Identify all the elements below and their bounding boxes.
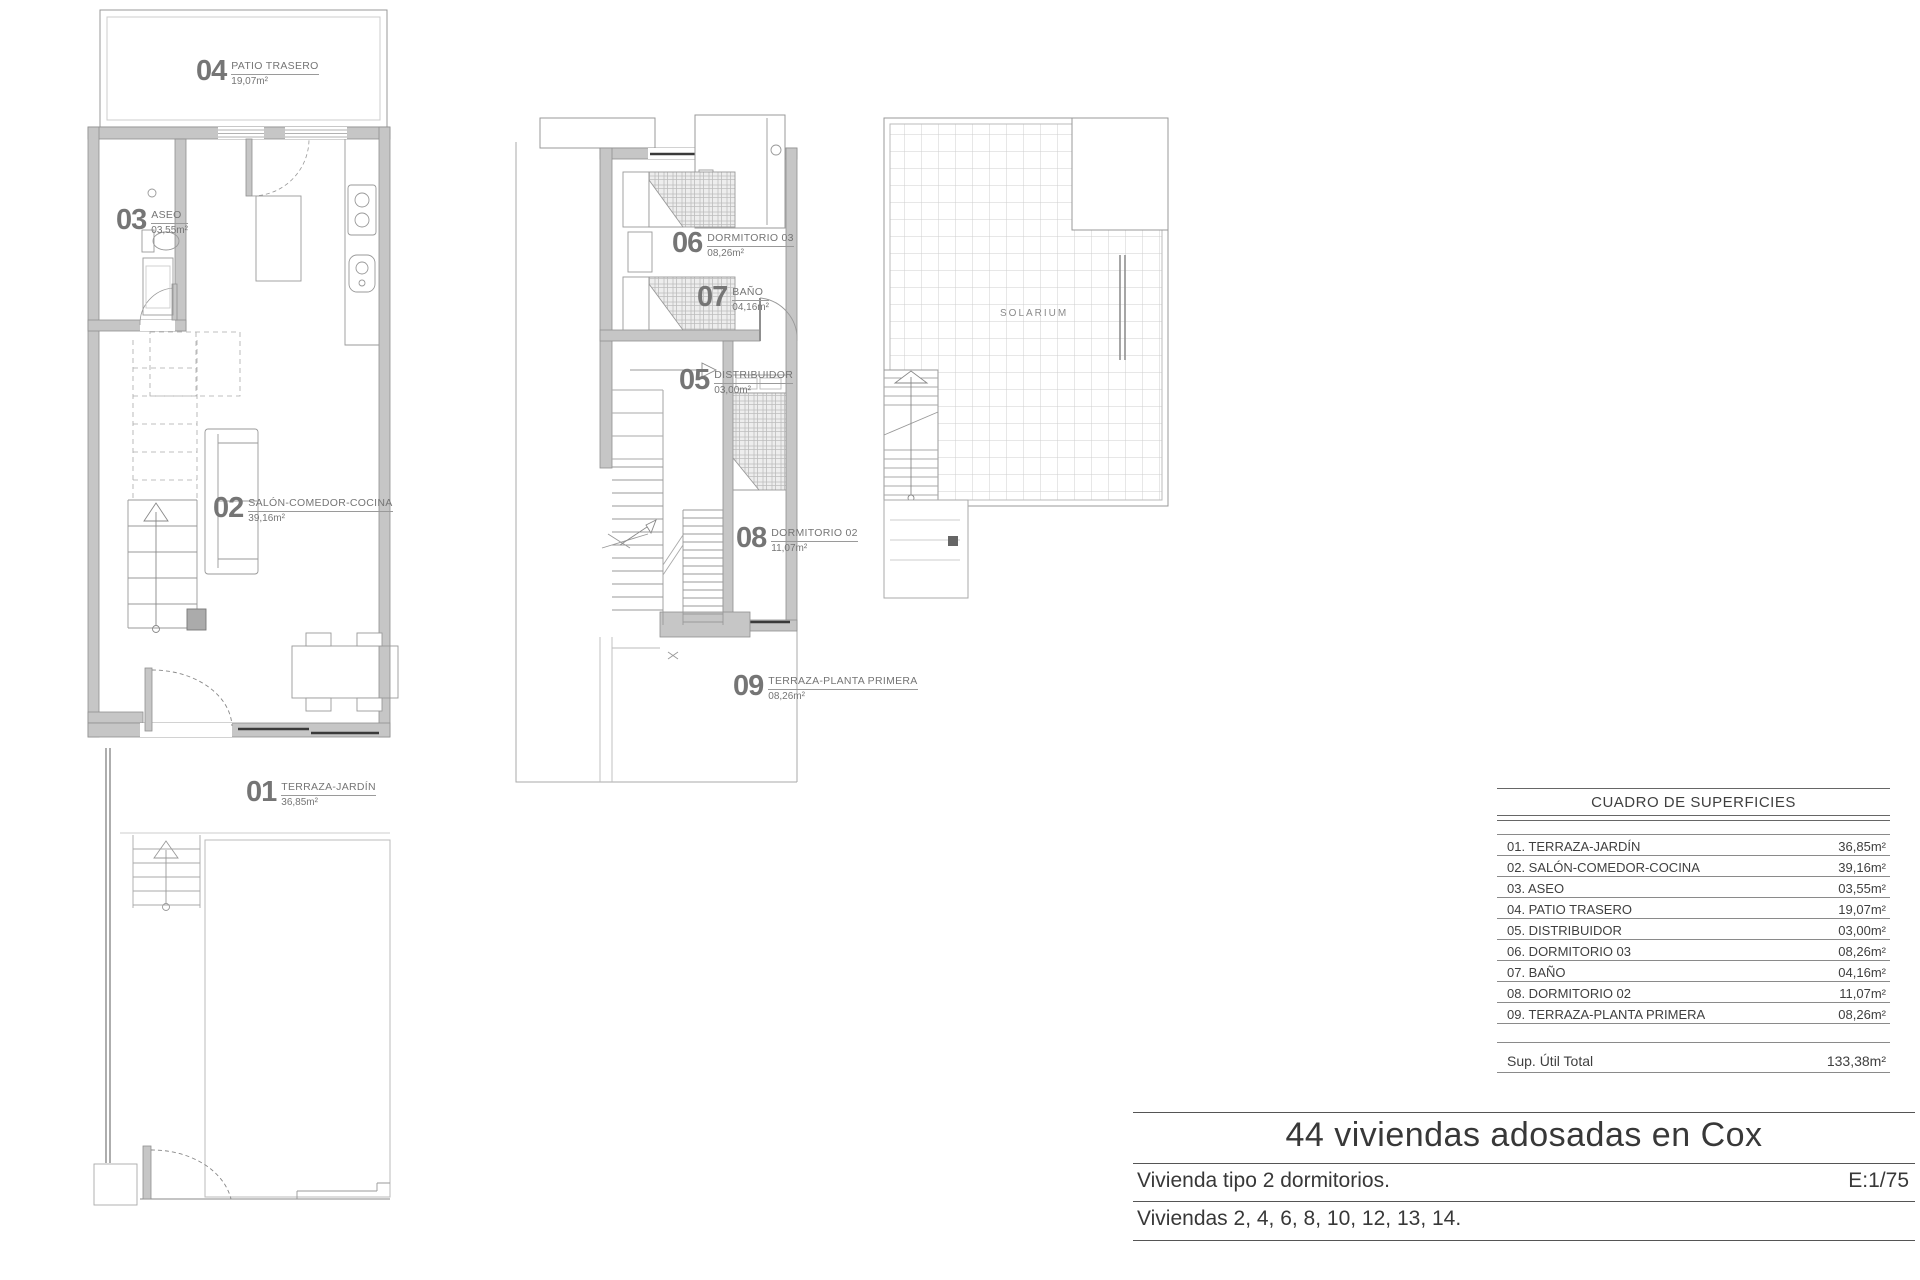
room-name: DISTRIBUIDOR [714,369,793,384]
room-number: 08 [736,524,766,553]
room-name: SALÓN-COMEDOR-COCINA [248,497,392,512]
room-name: BAÑO [732,286,769,301]
room-name: DORMITORIO 03 [707,232,794,247]
project-title: 44 viviendas adosadas en Cox [1133,1116,1915,1155]
room-number: 06 [672,229,702,258]
surface-row: 09. TERRAZA-PLANTA PRIMERA08,26m² [1497,1003,1890,1024]
ground-floor-drawing [80,0,430,1220]
surface-row-label: 06. DORMITORIO 03 [1507,944,1631,959]
surface-row-label: 01. TERRAZA-JARDÍN [1507,839,1640,854]
surface-row-label: 07. BAÑO [1507,965,1566,980]
room-label-dormitorio-03: 06 DORMITORIO 0308,26m² [672,229,794,261]
surface-row: 03. ASEO03,55m² [1497,877,1890,898]
title-block-rule [1133,1112,1915,1113]
room-label-distribuidor: 05 DISTRIBUIDOR03,00m² [679,366,793,398]
surface-table-title: CUADRO DE SUPERFICIES [1497,788,1890,816]
surface-row-value: 11,07m² [1839,986,1886,1001]
surface-row-value: 08,26m² [1838,1007,1886,1022]
room-area: 03,00m² [714,384,793,398]
surface-row-value: 19,07m² [1838,902,1886,917]
surface-row-label: 02. SALÓN-COMEDOR-COCINA [1507,860,1700,875]
room-label-dormitorio-02: 08 DORMITORIO 0211,07m² [736,524,858,556]
surface-table-title-underline [1497,816,1890,821]
room-name: PATIO TRASERO [231,60,318,75]
room-name: DORMITORIO 02 [771,527,858,542]
surface-row: 08. DORMITORIO 0211,07m² [1497,982,1890,1003]
room-area: 11,07m² [771,542,858,556]
surface-row-label: 03. ASEO [1507,881,1564,896]
room-name: TERRAZA-JARDÍN [281,781,376,796]
surface-row-label: 09. TERRAZA-PLANTA PRIMERA [1507,1007,1705,1022]
room-name: TERRAZA-PLANTA PRIMERA [768,675,917,690]
surface-row: 01. TERRAZA-JARDÍN36,85m² [1497,835,1890,856]
surface-table: CUADRO DE SUPERFICIES 01. TERRAZA-JARDÍN… [1497,788,1890,1073]
surface-row-label: 08. DORMITORIO 02 [1507,986,1631,1001]
room-number: 07 [697,283,727,312]
surface-row-value: 03,55m² [1838,881,1886,896]
room-area: 03,55m² [151,224,188,238]
title-block-rule [1133,1201,1915,1202]
surface-total-value: 133,38m² [1827,1053,1886,1069]
title-block-rule [1133,1240,1915,1241]
room-area: 39,16m² [248,512,392,526]
room-label-salon-comedor-cocina: 02 SALÓN-COMEDOR-COCINA39,16m² [213,494,393,526]
surface-row-value: 03,00m² [1838,923,1886,938]
surface-row-value: 36,85m² [1838,839,1886,854]
room-number: 03 [116,206,146,235]
title-block-rule [1133,1163,1915,1164]
dwelling-type: Vivienda tipo 2 dormitorios. [1137,1169,1390,1193]
room-number: 09 [733,672,763,701]
surface-row-label: 04. PATIO TRASERO [1507,902,1632,917]
drawing-scale: E:1/75 [1848,1169,1909,1193]
room-number: 02 [213,494,243,523]
dwelling-units-row: Viviendas 2, 4, 6, 8, 10, 12, 13, 14. [1137,1207,1909,1231]
room-area: 36,85m² [281,796,376,810]
room-number: 01 [246,778,276,807]
room-area: 08,26m² [707,247,794,261]
room-label-aseo: 03 ASEO03,55m² [116,206,188,238]
surface-row: 07. BAÑO04,16m² [1497,961,1890,982]
surface-row: 05. DISTRIBUIDOR03,00m² [1497,919,1890,940]
drawing-sheet: 04 PATIO TRASERO19,07m² 03 ASEO03,55m² 0… [0,0,1920,1280]
surface-row-value: 04,16m² [1838,965,1886,980]
surface-row: 04. PATIO TRASERO19,07m² [1497,898,1890,919]
room-label-terraza-jardin: 01 TERRAZA-JARDÍN36,85m² [246,778,376,810]
room-label-terraza-planta-primera: 09 TERRAZA-PLANTA PRIMERA08,26m² [733,672,918,704]
surface-total-label: Sup. Útil Total [1507,1053,1593,1069]
surface-row-value: 08,26m² [1838,944,1886,959]
room-label-patio-trasero: 04 PATIO TRASERO19,07m² [196,57,319,89]
surface-row-label: 05. DISTRIBUIDOR [1507,923,1622,938]
title-block: 44 viviendas adosadas en Cox Vivienda ti… [1133,1105,1915,1250]
room-name: ASEO [151,209,188,224]
room-number: 05 [679,366,709,395]
surface-row: 06. DORMITORIO 0308,26m² [1497,940,1890,961]
room-area: 08,26m² [768,690,917,704]
dwelling-units: Viviendas 2, 4, 6, 8, 10, 12, 13, 14. [1137,1207,1461,1230]
ground-floor-plan: 04 PATIO TRASERO19,07m² 03 ASEO03,55m² 0… [80,0,430,1220]
surface-row-value: 39,16m² [1838,860,1886,875]
solarium-label: SOLARIUM [1000,308,1068,319]
dwelling-type-row: Vivienda tipo 2 dormitorios. E:1/75 [1137,1169,1909,1193]
surface-table-rows: 01. TERRAZA-JARDÍN36,85m² 02. SALÓN-COME… [1497,834,1890,1024]
room-area: 04,16m² [732,301,769,315]
room-label-bano: 07 BAÑO04,16m² [697,283,769,315]
room-area: 19,07m² [231,75,318,89]
roof-plan-drawing [870,100,1190,620]
surface-total-row: Sup. Útil Total 133,38m² [1497,1042,1890,1073]
room-number: 04 [196,57,226,86]
surface-row: 02. SALÓN-COMEDOR-COCINA39,16m² [1497,856,1890,877]
first-floor-plan: 06 DORMITORIO 0308,26m² 07 BAÑO04,16m² 0… [490,110,830,790]
roof-plan: SOLARIUM [870,100,1190,620]
